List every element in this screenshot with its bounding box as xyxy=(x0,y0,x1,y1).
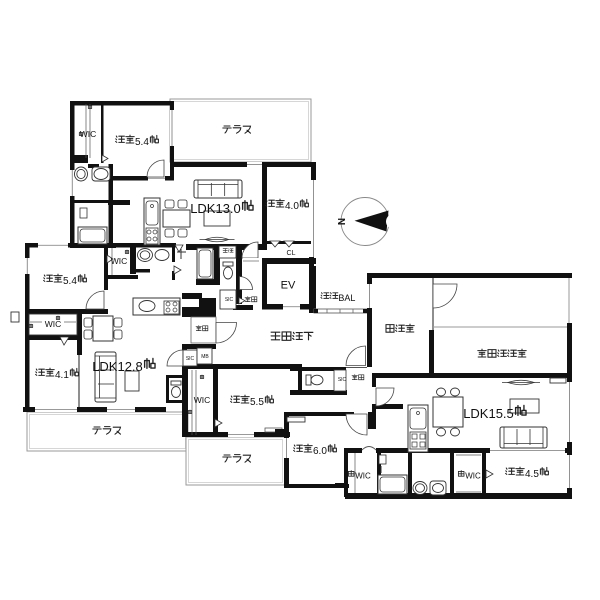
svg-text:LDK12.8: LDK12.8 xyxy=(92,359,143,374)
svg-text:EV: EV xyxy=(281,280,296,292)
svg-text:WIC: WIC xyxy=(111,256,128,266)
svg-text:WIC: WIC xyxy=(465,472,481,481)
svg-text:6.0: 6.0 xyxy=(313,446,327,457)
svg-text:SIC: SIC xyxy=(338,377,347,383)
svg-text:WIC: WIC xyxy=(194,395,211,405)
svg-text:BAL: BAL xyxy=(338,293,355,303)
svg-text:LDK15.5: LDK15.5 xyxy=(463,406,514,421)
svg-text:4.5: 4.5 xyxy=(525,469,539,480)
svg-text:5.4: 5.4 xyxy=(63,276,77,287)
svg-text:N: N xyxy=(337,218,348,225)
svg-text:SIC: SIC xyxy=(225,297,234,303)
svg-text:WIC: WIC xyxy=(45,319,62,329)
svg-text:5.4: 5.4 xyxy=(135,137,149,148)
svg-text:WIC: WIC xyxy=(355,472,371,481)
svg-text:LDK13.0: LDK13.0 xyxy=(190,201,241,216)
svg-text:SIC: SIC xyxy=(186,356,195,362)
svg-text:MB: MB xyxy=(201,354,209,360)
svg-text:5.5: 5.5 xyxy=(250,397,264,408)
svg-text:4.0: 4.0 xyxy=(285,201,299,212)
svg-text:4.1: 4.1 xyxy=(55,370,69,381)
svg-text:CL: CL xyxy=(287,250,296,257)
